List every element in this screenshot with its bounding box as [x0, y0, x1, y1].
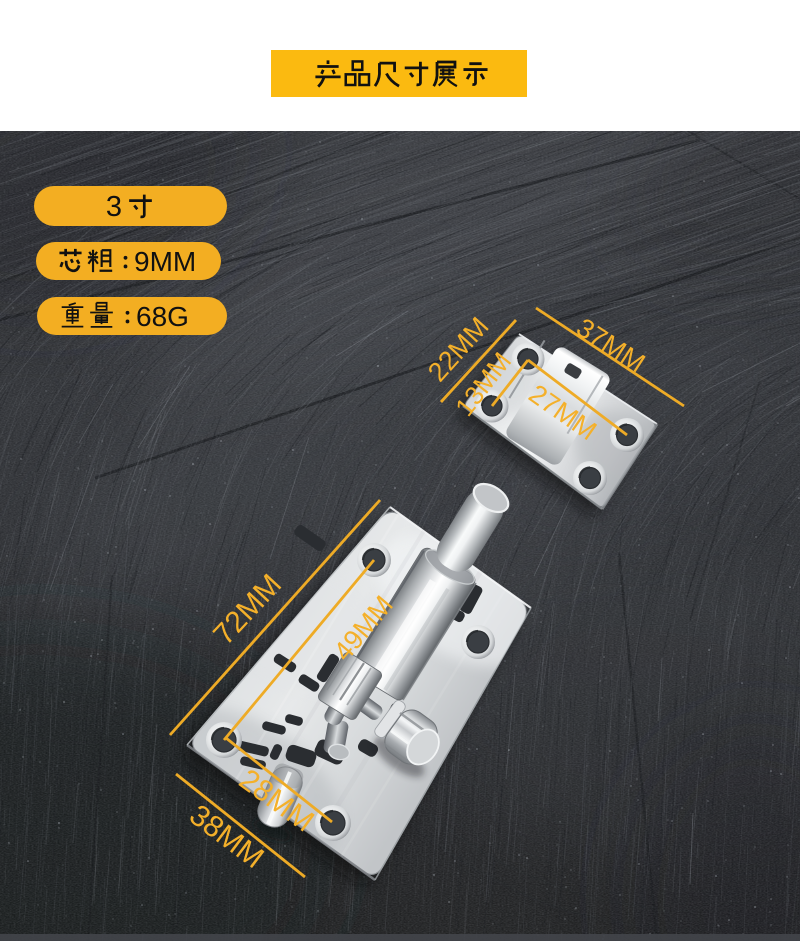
- svg-text:3: 3: [106, 191, 122, 223]
- svg-text:68G: 68G: [136, 301, 189, 332]
- svg-text:9MM: 9MM: [134, 246, 196, 277]
